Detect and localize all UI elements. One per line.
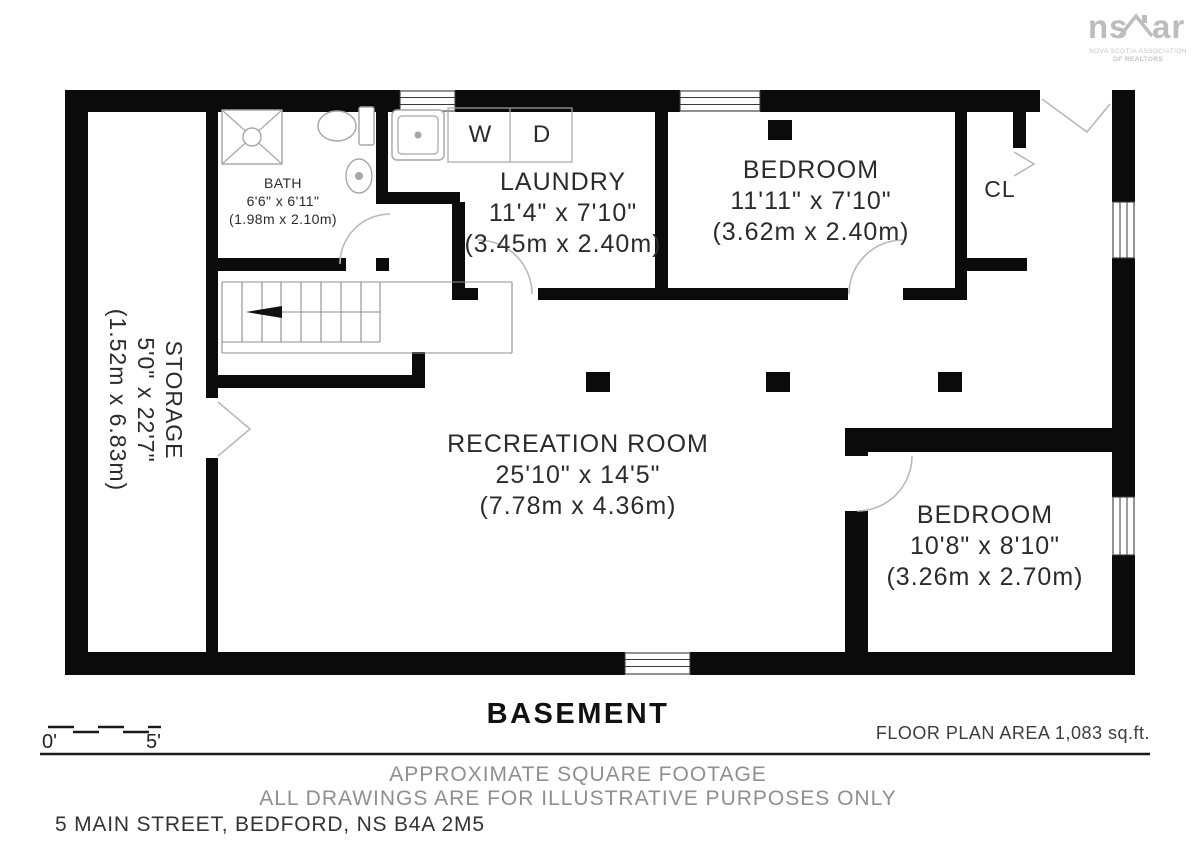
room-dims-metric: (3.26m x 2.70m) xyxy=(845,562,1125,593)
room-dims-metric: (3.45m x 2.40m) xyxy=(423,229,703,260)
laundry-sink-icon xyxy=(392,110,444,160)
entry-door-icon xyxy=(1042,99,1110,132)
property-address: 5 MAIN STREET, BEDFORD, NS B4A 2M5 xyxy=(55,813,485,837)
room-label-recreation: RECREATION ROOM 25'10" x 14'5" (7.78m x … xyxy=(408,429,748,522)
room-name: BEDROOM xyxy=(671,155,951,186)
room-dims-imperial: 11'4" x 7'10" xyxy=(423,198,703,229)
shower-icon xyxy=(222,110,282,164)
room-dims-imperial: 10'8" x 8'10" xyxy=(845,531,1125,562)
room-dims-metric: (1.52m x 6.83m) xyxy=(104,260,132,540)
floor-title: BASEMENT xyxy=(428,698,728,731)
room-label-bedroom1: BEDROOM 11'11" x 7'10" (3.62m x 2.40m) xyxy=(671,155,951,248)
scale-bar xyxy=(48,727,161,732)
room-label-laundry: LAUNDRY 11'4" x 7'10" (3.45m x 2.40m) xyxy=(423,167,703,260)
room-dims-metric: (3.62m x 2.40m) xyxy=(671,217,951,248)
disclaimer-line1: APPROXIMATE SQUARE FOOTAGE xyxy=(0,763,1156,787)
room-dims-imperial: 25'10" x 14'5" xyxy=(408,460,748,491)
logo-subtitle: NOVA SCOTIA ASSOCIATION OF REALTORS xyxy=(1086,48,1190,64)
logo-text-left: ns xyxy=(1088,8,1129,46)
room-label-bath: BATH 6'6" x 6'11" (1.98m x 2.10m) xyxy=(193,174,373,228)
window-icon-bedroom1 xyxy=(680,91,760,111)
room-label-bedroom2: BEDROOM 10'8" x 8'10" (3.26m x 2.70m) xyxy=(845,500,1125,593)
dryer-label: D xyxy=(511,121,572,149)
closet-bifold-door-icon xyxy=(1014,152,1034,176)
bedroom1-door-arc xyxy=(849,240,903,294)
storage-door-icon xyxy=(218,402,250,456)
floor-plan-page: BATH 6'6" x 6'11" (1.98m x 2.10m) LAUNDR… xyxy=(0,0,1200,847)
room-dims-metric: (1.98m x 2.10m) xyxy=(193,210,373,228)
room-label-closet: CL xyxy=(980,176,1020,203)
toilet-icon xyxy=(318,107,374,145)
disclaimer-line2: ALL DRAWINGS ARE FOR ILLUSTRATIVE PURPOS… xyxy=(0,787,1156,811)
room-dims-imperial: 6'6" x 6'11" xyxy=(193,192,373,210)
scale-start-label: 0' xyxy=(42,731,57,754)
window-icon-right-upper xyxy=(1113,202,1134,258)
washer-label: W xyxy=(449,121,511,149)
logo-text-right: ar xyxy=(1152,8,1185,46)
room-dims-imperial: 11'11" x 7'10" xyxy=(671,186,951,217)
floor-area-label: FLOOR PLAN AREA 1,083 sq.ft. xyxy=(850,723,1150,744)
room-name: RECREATION ROOM xyxy=(408,429,748,460)
room-name: STORAGE xyxy=(160,260,188,540)
stairs-direction-arrow xyxy=(246,306,282,318)
room-name: LAUNDRY xyxy=(423,167,703,198)
window-icon-bottom xyxy=(625,653,690,674)
room-name: CL xyxy=(980,176,1020,203)
room-label-storage: STORAGE 5'0" x 22'7" (1.52m x 6.83m) xyxy=(104,260,188,540)
room-dims-imperial: 5'0" x 22'7" xyxy=(132,260,160,540)
window-icon-laundry xyxy=(400,91,455,111)
room-name: BATH xyxy=(193,174,373,192)
room-dims-metric: (7.78m x 4.36m) xyxy=(408,491,748,522)
scale-end-label: 5' xyxy=(146,731,161,754)
room-name: BEDROOM xyxy=(845,500,1125,531)
logo-subtitle-line1: NOVA SCOTIA ASSOCIATION xyxy=(1086,48,1190,56)
logo-subtitle-line2: OF REALTORS xyxy=(1086,56,1190,64)
